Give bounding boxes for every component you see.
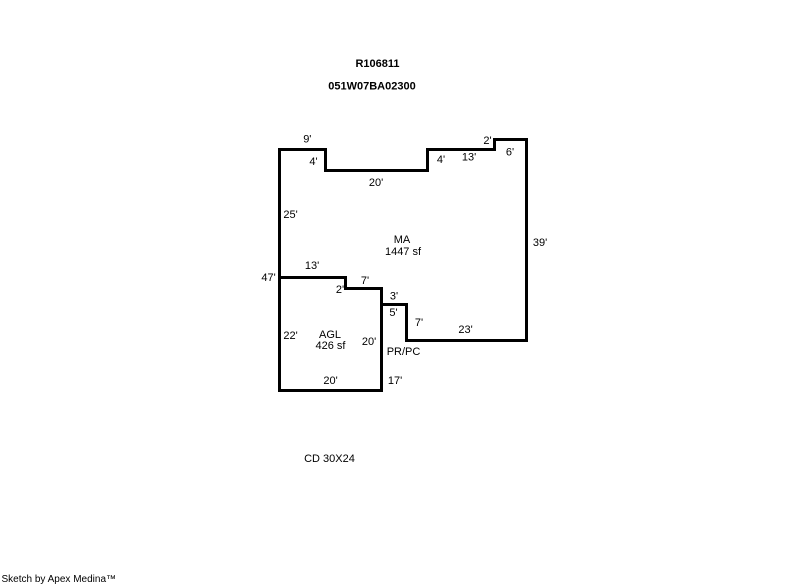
svg-text:4': 4' bbox=[309, 156, 317, 168]
svg-text:25': 25' bbox=[283, 209, 297, 221]
svg-text:39': 39' bbox=[533, 237, 547, 249]
svg-text:051W07BA02300: 051W07BA02300 bbox=[328, 81, 415, 93]
svg-text:17': 17' bbox=[388, 375, 402, 387]
svg-text:6': 6' bbox=[506, 147, 514, 159]
svg-text:20': 20' bbox=[362, 336, 376, 348]
svg-text:47': 47' bbox=[261, 272, 275, 284]
svg-text:4': 4' bbox=[437, 154, 445, 166]
svg-text:426 sf: 426 sf bbox=[316, 340, 347, 352]
svg-text:7': 7' bbox=[361, 275, 369, 287]
svg-text:CD 30X24: CD 30X24 bbox=[304, 453, 355, 465]
svg-text:3': 3' bbox=[390, 291, 398, 303]
svg-text:9': 9' bbox=[303, 134, 311, 146]
svg-text:13': 13' bbox=[462, 152, 476, 164]
svg-text:2': 2' bbox=[483, 135, 491, 147]
svg-text:2': 2' bbox=[336, 284, 344, 296]
svg-text:PR/PC: PR/PC bbox=[387, 346, 421, 358]
svg-text:R106811: R106811 bbox=[355, 58, 399, 70]
svg-text:23': 23' bbox=[458, 324, 472, 336]
svg-text:MA: MA bbox=[394, 234, 411, 246]
svg-text:13': 13' bbox=[305, 260, 319, 272]
svg-text:20': 20' bbox=[369, 177, 383, 189]
svg-text:22': 22' bbox=[283, 330, 297, 342]
svg-text:7': 7' bbox=[415, 317, 423, 329]
svg-text:1447 sf: 1447 sf bbox=[385, 246, 422, 258]
svg-text:5': 5' bbox=[389, 307, 397, 319]
svg-text:Sketch by Apex Medina™: Sketch by Apex Medina™ bbox=[2, 574, 117, 585]
svg-text:20': 20' bbox=[323, 375, 337, 387]
